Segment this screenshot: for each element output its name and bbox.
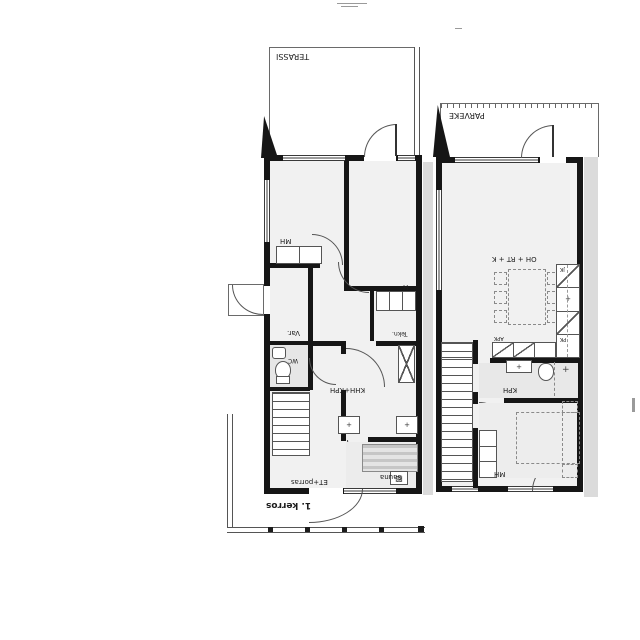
cross-mark: + — [404, 421, 410, 429]
cross-mark: + — [346, 421, 352, 429]
terrace-outline — [269, 47, 420, 157]
bathroom-sink: + — [506, 360, 532, 373]
stairs-break-line — [441, 342, 473, 358]
tech-equipment — [398, 345, 415, 383]
nightstand — [562, 401, 578, 413]
yard-fence — [227, 414, 233, 532]
kitchen-counter — [492, 342, 556, 358]
cut-mark — [341, 6, 358, 7]
bed-pillow-line — [562, 413, 563, 461]
adjacent-unit-strip — [584, 157, 598, 497]
bedroom2-label: MH — [494, 470, 505, 477]
shower-cross: + — [562, 365, 570, 375]
freezer-label: PK — [560, 336, 566, 341]
dining-chair — [494, 291, 507, 304]
interior-wall — [473, 340, 478, 364]
entry-door-arc — [309, 489, 363, 523]
stairs-floor2 — [441, 342, 473, 482]
living-dining-kitchen-label: OH + RT + K — [492, 255, 537, 262]
window — [264, 180, 270, 242]
fence-post — [418, 526, 424, 532]
terrace-door-leaf — [395, 124, 397, 156]
terrace-right-edge — [414, 47, 420, 156]
shower-divider — [554, 362, 555, 396]
interior-wall — [370, 291, 374, 341]
sauna-benches — [362, 444, 418, 472]
washer: + — [338, 416, 360, 434]
nightstand — [562, 464, 578, 478]
adjacent-unit-strip — [423, 162, 433, 495]
stairs-floor1 — [272, 392, 310, 456]
window — [398, 155, 415, 161]
yard-fence — [227, 527, 425, 533]
wc-toilet-tank — [276, 376, 290, 384]
wc-sink — [272, 347, 286, 359]
cross-mark: + — [516, 363, 522, 371]
floor-plan-canvas: TERASSI — [0, 0, 640, 640]
balcony-railing — [441, 104, 596, 108]
kitchen-cabinet-centerline — [567, 265, 568, 357]
cut-mark — [455, 28, 462, 29]
fence-post — [379, 527, 384, 532]
window — [436, 190, 442, 290]
closet — [276, 246, 322, 264]
entry-stairs-label: ET+porras — [291, 478, 328, 485]
side-door-opening — [264, 286, 270, 314]
kitchen-tall-cabinets: + — [556, 264, 580, 358]
dining-chair — [494, 310, 507, 323]
terrace-label: TERASSI — [276, 52, 309, 60]
dryer: + — [396, 416, 418, 434]
dining-table — [508, 269, 546, 325]
interior-wall — [473, 428, 478, 488]
interior-wall — [270, 387, 310, 391]
sauna-label: Sauna — [380, 473, 402, 480]
cut-mark — [632, 398, 635, 412]
bedroom1-label: MH — [280, 237, 291, 244]
cross-mark: + — [565, 295, 571, 303]
utility-bath-label: KHH+KPH — [330, 386, 365, 393]
cut-mark — [337, 3, 367, 4]
fence-post — [342, 527, 347, 532]
tech-label: Tekn. — [392, 330, 408, 336]
balcony-label: PARVEKE — [449, 111, 485, 119]
bathroom-toilet — [538, 363, 554, 381]
dishwasher-label: APK — [494, 335, 504, 340]
fence-post — [305, 527, 310, 532]
wc-label: WC — [288, 357, 298, 363]
closet — [376, 291, 416, 311]
bed — [516, 412, 580, 464]
bathroom-label: KPH — [503, 386, 517, 393]
storage-label: Var. — [287, 329, 300, 336]
room-h-label: H — [403, 283, 408, 290]
window — [283, 155, 345, 161]
floor1-title: 1. kerros — [266, 500, 311, 509]
balcony-door-leaf — [552, 125, 554, 157]
dining-chair — [494, 272, 507, 285]
interior-wall — [473, 392, 478, 404]
fridge-label: JK — [560, 266, 565, 271]
fence-post — [268, 527, 273, 532]
